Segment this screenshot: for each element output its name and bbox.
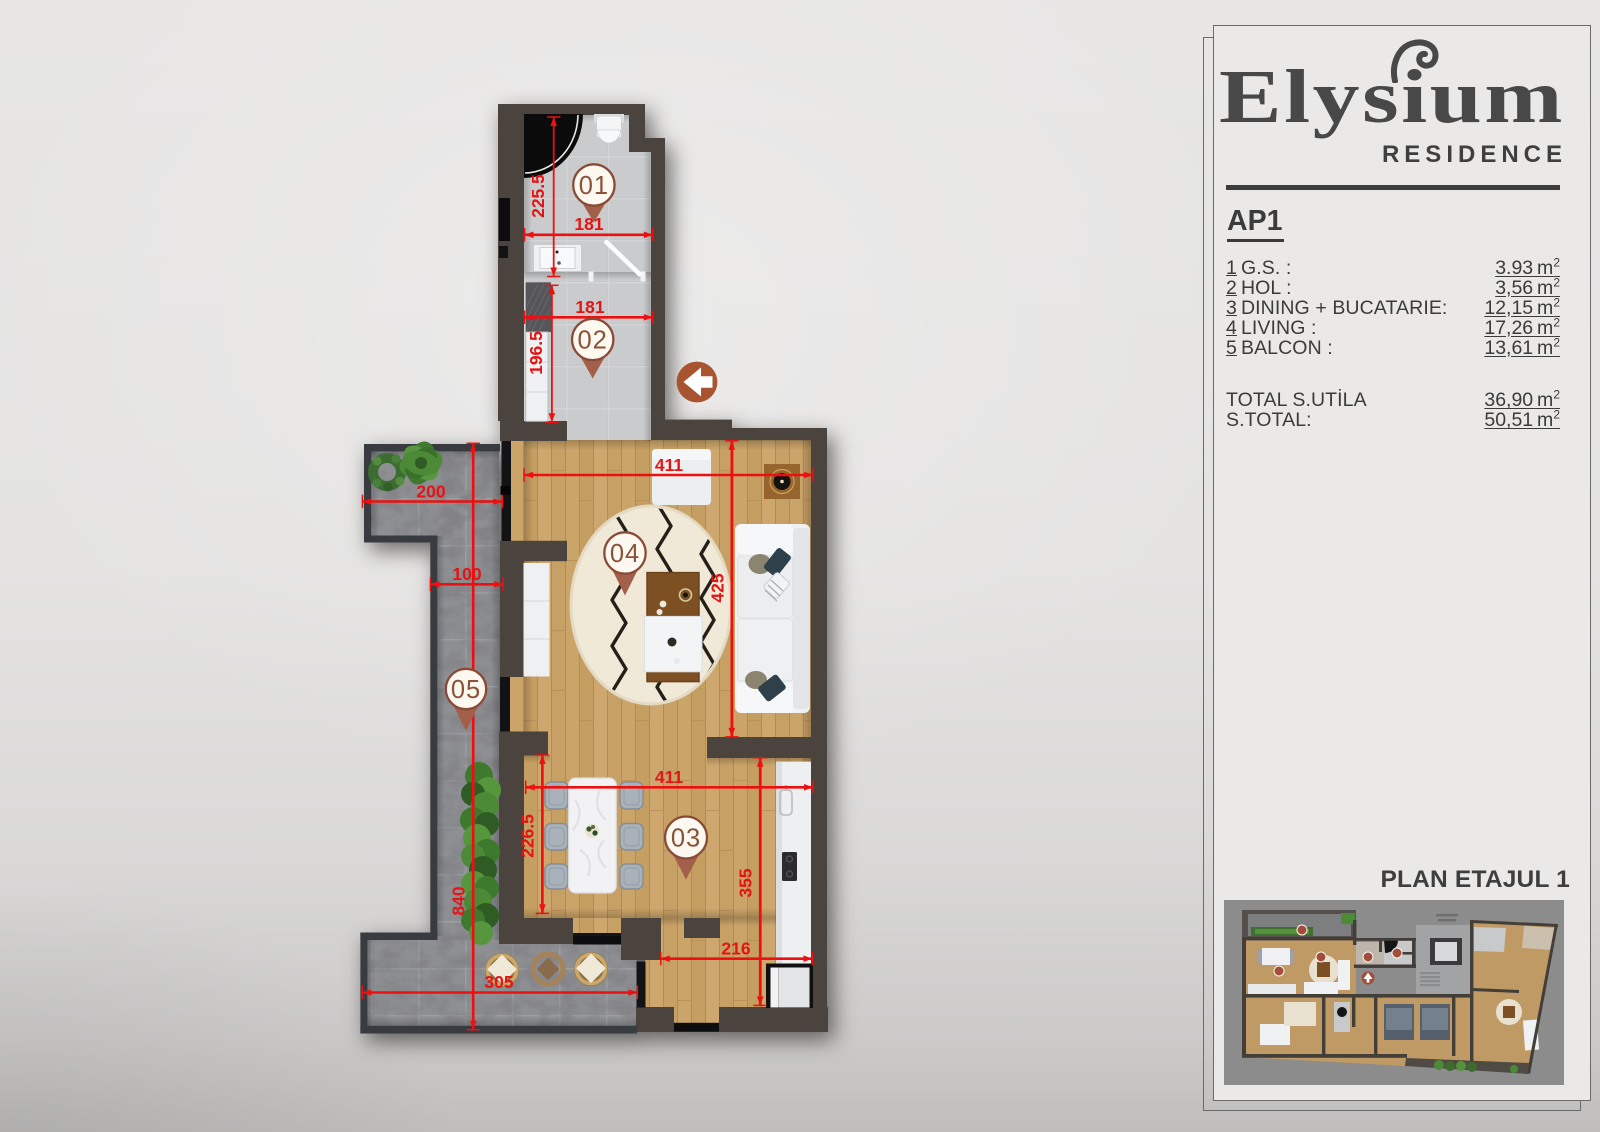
svg-text:04: 04 — [610, 540, 640, 568]
svg-text:226.5: 226.5 — [518, 814, 538, 858]
svg-text:181: 181 — [574, 214, 603, 234]
svg-text:425: 425 — [708, 573, 728, 602]
svg-text:02: 02 — [578, 327, 608, 355]
svg-text:181: 181 — [575, 297, 604, 317]
svg-text:05: 05 — [451, 676, 481, 704]
svg-text:840: 840 — [449, 886, 469, 915]
svg-text:411: 411 — [655, 767, 683, 787]
svg-text:216: 216 — [721, 939, 750, 959]
svg-text:355: 355 — [736, 868, 756, 897]
svg-text:200: 200 — [416, 482, 445, 502]
svg-text:196.5: 196.5 — [526, 331, 546, 375]
svg-text:100: 100 — [452, 564, 481, 584]
svg-text:305: 305 — [484, 972, 513, 992]
svg-text:411: 411 — [655, 455, 683, 475]
svg-text:225.5: 225.5 — [528, 174, 548, 218]
svg-text:01: 01 — [579, 172, 609, 200]
svg-text:03: 03 — [671, 825, 701, 853]
